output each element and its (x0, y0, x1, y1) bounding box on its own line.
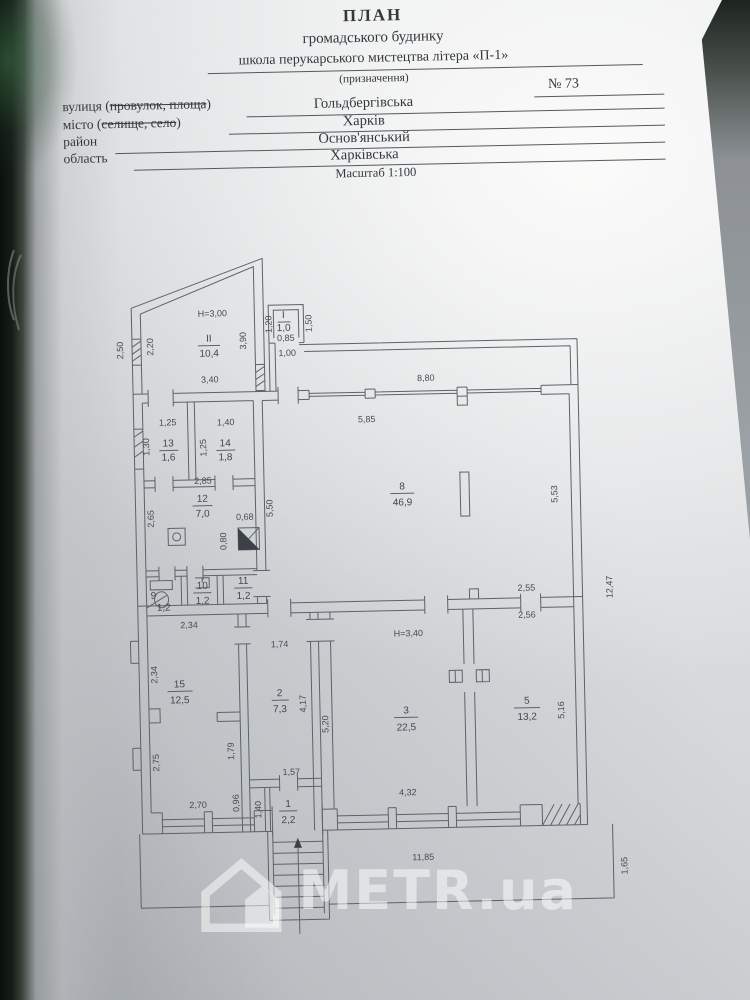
room-area: 1,6 (161, 452, 176, 463)
photo-of-floor-plan-document: ПЛАН громадського будинку школа перукарс… (0, 0, 750, 1000)
watermark-text: METR.ua (299, 859, 578, 922)
dim-label: 1,00 (278, 348, 296, 358)
room-label: 3 (403, 705, 409, 716)
room-area: 1,8 (218, 452, 233, 463)
dim-label: 1,40 (217, 417, 235, 427)
room-area: 1,2 (157, 602, 172, 613)
room-area: 22,5 (397, 722, 417, 733)
room-area: 12,5 (170, 695, 190, 706)
dim-label: 1,74 (271, 639, 289, 649)
dim-label: 1,65 (619, 857, 629, 875)
height-label-upper: Н=3,00 (198, 308, 227, 319)
dim-label: 12,47 (604, 576, 614, 599)
document-header: ПЛАН громадського будинку школа перукарс… (56, 0, 692, 209)
room-label: 13 (162, 438, 174, 449)
dim-label: 1,20 (263, 315, 273, 333)
dim-label: 3,40 (201, 374, 219, 384)
room-area: 7,0 (196, 509, 211, 520)
dim-label: 1,25 (159, 417, 177, 427)
dim-label: 5,50 (264, 499, 274, 517)
region-label: область (63, 150, 107, 167)
height-label-lower: Н=3,40 (394, 628, 423, 639)
city-label-post: ) (176, 115, 181, 130)
room-label: 5 (524, 696, 530, 707)
dim-label: 0,85 (277, 333, 295, 343)
dim-label: 2,56 (518, 610, 536, 620)
room-label: ІІ (206, 334, 212, 345)
dim-label: 1,40 (253, 801, 263, 819)
room-label: 11 (238, 576, 249, 587)
room-label: 15 (174, 679, 186, 690)
city-label-pre: місто ( (63, 116, 102, 132)
dim-label: 8,80 (417, 373, 435, 383)
room-label: 12 (197, 494, 209, 505)
dim-label: 2,65 (146, 510, 156, 528)
room-area: 1,2 (196, 596, 211, 607)
dim-label: 5,16 (556, 701, 566, 719)
room-label: 14 (219, 438, 231, 449)
dim-label: 5,20 (320, 715, 330, 733)
street-label-pre: вулиця ( (62, 98, 110, 114)
watermark-house-icon (198, 848, 289, 934)
room-label: 2 (277, 688, 283, 699)
dim-label: 3,90 (238, 332, 248, 350)
house-number: № 73 (548, 76, 579, 93)
dim-label: 0,80 (218, 532, 228, 550)
number-underline (534, 94, 664, 98)
district-label: район (63, 133, 97, 150)
dim-label: 1,25 (198, 439, 208, 457)
dim-label: 0,68 (236, 512, 254, 522)
street-label-struck: провулок, площа (110, 96, 207, 113)
room-area: 2,2 (281, 815, 296, 826)
dim-label: 1,30 (141, 438, 151, 456)
dim-label: 2,20 (145, 338, 155, 356)
dim-label: 4,32 (399, 787, 417, 797)
city-label-struck: селище, село (101, 115, 176, 132)
dim-label: 5,85 (358, 414, 376, 424)
site-watermark: METR.ua (198, 838, 578, 943)
street-label: вулиця (провулок, площа) (62, 96, 211, 115)
dim-label: 2,55 (518, 583, 536, 593)
room-label: 1 (285, 799, 291, 810)
room-area: 1,2 (236, 591, 251, 602)
dim-label: 2,70 (189, 800, 207, 810)
dim-label: 2,75 (151, 754, 161, 772)
dim-label: 5,53 (549, 485, 559, 503)
room-area: 46,9 (393, 497, 413, 508)
room-label: І (282, 310, 285, 321)
room-label: 10 (197, 581, 209, 592)
room-area: 13,2 (517, 712, 537, 723)
dim-label: 0,96 (231, 794, 241, 812)
dim-label: 1,57 (282, 767, 300, 777)
city-label: місто (селище, село) (63, 115, 181, 133)
dim-label: 4,17 (298, 695, 308, 713)
dim-label: 1,79 (226, 742, 236, 760)
room-area: 10,4 (199, 348, 219, 359)
dim-label: 2,85 (194, 476, 212, 486)
room-label: 8 (399, 481, 405, 492)
margin-scribbles (0, 228, 26, 358)
plan-walls (122, 251, 615, 937)
dim-label: 2,34 (180, 620, 198, 630)
room-label: 9 (151, 591, 157, 602)
dim-label: 1,50 (303, 315, 313, 333)
dim-label: 2,50 (115, 342, 125, 360)
room-area: 7,3 (273, 704, 288, 715)
dim-label: 2,34 (149, 666, 159, 684)
